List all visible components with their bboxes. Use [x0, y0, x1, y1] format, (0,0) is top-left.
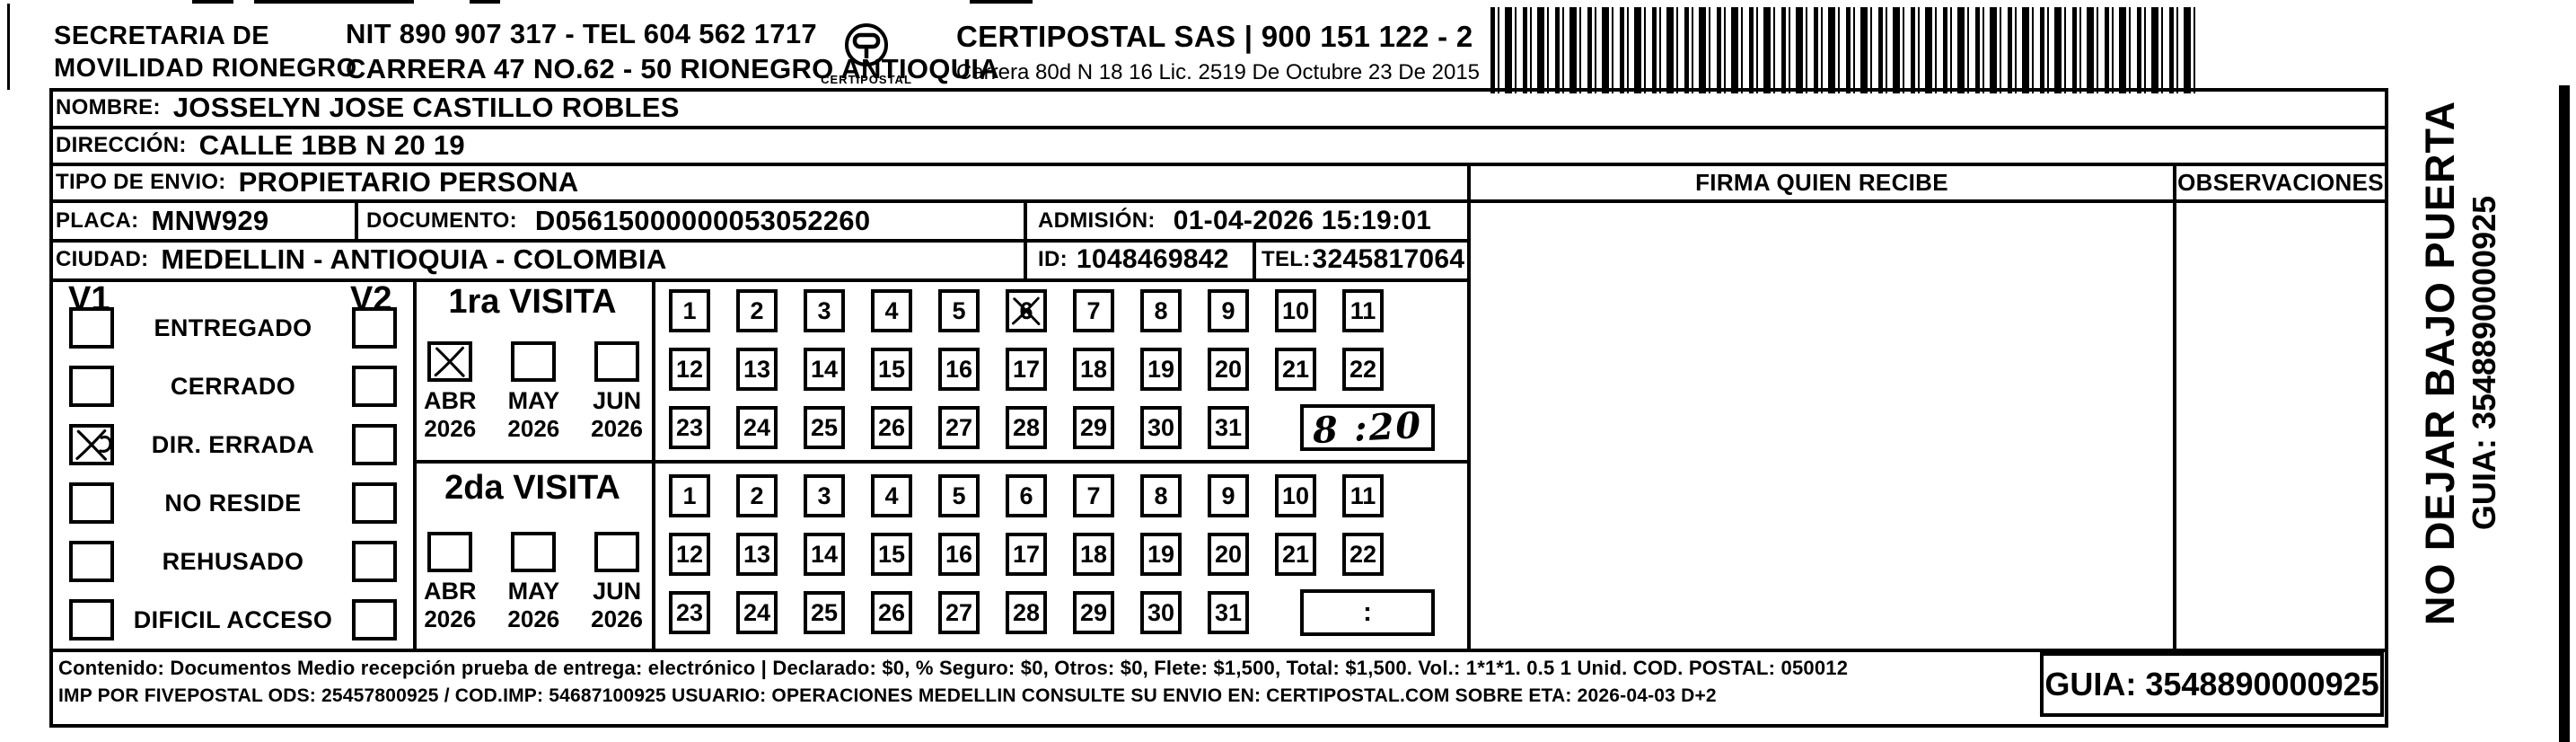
day-5-visit2[interactable]: 5: [938, 474, 980, 517]
day-1-visit2[interactable]: 1: [669, 474, 710, 517]
month-option: ABR2026: [424, 341, 477, 443]
status-option-row: DIR. ERRADA: [49, 422, 413, 467]
day-4-visit1[interactable]: 4: [871, 289, 912, 332]
day-24-visit2[interactable]: 24: [736, 591, 778, 634]
day-3-visit1[interactable]: 3: [804, 289, 845, 332]
day-6-visit2[interactable]: 6: [1006, 474, 1047, 517]
day-13-visit1[interactable]: 13: [736, 348, 778, 391]
day-number: 22: [1350, 356, 1376, 384]
admision-value: 01-04-2026 15:19:01: [1174, 206, 1432, 236]
checkbox-v1-no-reside[interactable]: [69, 482, 114, 524]
day-number: 31: [1215, 599, 1242, 627]
day-number: 30: [1147, 414, 1174, 442]
day-11-visit2[interactable]: 11: [1342, 474, 1384, 517]
checkbox-month-abr-visit1[interactable]: [427, 341, 472, 382]
day-17-visit1[interactable]: 17: [1006, 348, 1047, 391]
placa-value: MNW929: [151, 205, 268, 237]
month-option: JUN2026: [591, 532, 643, 633]
visit1-title: 1ra VISITA: [420, 283, 645, 322]
month-option: JUN2026: [591, 341, 643, 443]
day-number: 14: [811, 356, 838, 384]
day-number: 9: [1221, 297, 1235, 325]
checkbox-month-abr-visit2[interactable]: [427, 532, 472, 572]
ciudad-value: MEDELLIN - ANTIOQUIA - COLOMBIA: [161, 243, 666, 276]
month-label: MAY: [508, 387, 560, 415]
scan-artifact: [470, 0, 500, 4]
day-12-visit1[interactable]: 12: [669, 348, 710, 391]
month-year: 2026: [591, 415, 643, 443]
day-23-visit1[interactable]: 23: [669, 406, 710, 449]
day-17-visit2[interactable]: 17: [1006, 533, 1047, 576]
checkbox-v2-entregado[interactable]: [352, 307, 397, 349]
status-option-label: CERRADO: [114, 373, 352, 401]
day-number: 11: [1350, 297, 1376, 325]
day-7-visit2[interactable]: 7: [1073, 474, 1114, 517]
day-28-visit1[interactable]: 28: [1006, 406, 1047, 449]
footer-content-line: Contenido: Documentos Medio recepción pr…: [58, 657, 1848, 680]
scan-artifact: [7, 4, 10, 90]
checkbox-month-jun-visit2[interactable]: [594, 532, 639, 572]
day-10-visit1[interactable]: 10: [1275, 289, 1316, 332]
visit1-day-grid: 1234567891011121314151617181920212223242…: [669, 289, 1435, 464]
day-number: 19: [1147, 356, 1174, 384]
day-number: 5: [952, 297, 965, 325]
day-number: 20: [1215, 541, 1242, 569]
checkbox-v2-dir-errada[interactable]: [352, 424, 397, 465]
day-number: 17: [1013, 356, 1040, 384]
certipostal-logo: CERTIPOSTAL: [835, 22, 898, 92]
day-number: 19: [1147, 541, 1174, 569]
time-value: :: [1363, 597, 1372, 628]
day-27-visit2[interactable]: 27: [938, 591, 980, 634]
month-option: ABR2026: [424, 532, 477, 633]
day-grid-row: 1234567891011: [669, 474, 1435, 517]
day-22-visit2[interactable]: 22: [1342, 533, 1384, 576]
checkbox-month-may-visit1[interactable]: [511, 341, 556, 382]
day-number: 29: [1080, 414, 1107, 442]
day-29-visit1[interactable]: 29: [1073, 406, 1114, 449]
day-2-visit1[interactable]: 2: [736, 289, 778, 332]
month-option: MAY2026: [507, 341, 559, 443]
checkbox-v2-rehusado[interactable]: [352, 541, 397, 582]
tipo-envio-label: TIPO DE ENVIO:: [56, 170, 226, 195]
day-number: 15: [878, 541, 905, 569]
month-label: JUN: [593, 387, 641, 415]
ciudad-label: CIUDAD:: [56, 247, 148, 272]
tel-label: TEL:: [1262, 247, 1311, 272]
day-15-visit2[interactable]: 15: [871, 533, 912, 576]
scan-artifact: [254, 0, 414, 4]
handwritten-x-mark: [431, 345, 469, 378]
column-divider: [652, 278, 655, 649]
visit1-months: ABR2026MAY2026JUN2026: [418, 341, 648, 443]
day-number: 17: [1013, 541, 1040, 569]
month-label: MAY: [508, 578, 560, 605]
day-21-visit2[interactable]: 21: [1275, 533, 1316, 576]
certipostal-delivery-form: SECRETARIA DE MOVILIDAD RIONEGRO NIT 890…: [0, 0, 2576, 742]
day-number: 14: [811, 541, 838, 569]
day-number: 23: [676, 414, 703, 442]
nit-line: NIT 890 907 317 - TEL 604 562 1717: [346, 16, 999, 51]
day-grid-row: 232425262728293031:: [669, 591, 1435, 634]
day-14-visit2[interactable]: 14: [804, 533, 845, 576]
side-guia-text: GUIA: 3548890000925: [2466, 196, 2503, 530]
day-26-visit1[interactable]: 26: [871, 406, 912, 449]
company-address: Carrera 80d N 18 16 Lic. 2519 De Octubre…: [956, 60, 1480, 85]
day-grid-row: 2324252627282930318 :20: [669, 406, 1435, 449]
day-12-visit2[interactable]: 12: [669, 533, 710, 576]
visit2-title: 2da VISITA: [420, 469, 645, 508]
checkbox-v1-dir-errada[interactable]: [69, 424, 114, 465]
day-number: 24: [743, 599, 770, 627]
visit2-months: ABR2026MAY2026JUN2026: [418, 532, 648, 633]
day-24-visit1[interactable]: 24: [736, 406, 778, 449]
id-label: ID:: [1038, 247, 1068, 272]
day-number: 18: [1080, 541, 1107, 569]
day-number: 4: [884, 482, 898, 510]
day-number: 24: [743, 414, 770, 442]
day-3-visit2[interactable]: 3: [804, 474, 845, 517]
day-number: 1: [682, 482, 696, 510]
sender-org-line1: SECRETARIA DE: [54, 20, 357, 52]
nombre-label: NOMBRE:: [56, 95, 161, 120]
month-year: 2026: [507, 605, 559, 633]
day-number: 12: [676, 356, 703, 384]
status-option-row: ENTREGADO: [49, 305, 413, 350]
placa-cell: PLACA: MNW929: [56, 203, 268, 239]
day-number: 7: [1086, 482, 1100, 510]
month-label: JUN: [593, 578, 641, 605]
admision-cell: ADMISIÓN: 01-04-2026 15:19:01: [1038, 203, 1431, 239]
day-25-visit1[interactable]: 25: [804, 406, 845, 449]
documento-value: D05615000000053052260: [535, 205, 871, 237]
row-divider: [49, 278, 1471, 282]
day-number: 25: [811, 599, 838, 627]
day-number: 7: [1086, 297, 1100, 325]
day-number: 29: [1080, 599, 1107, 627]
column-divider: [413, 278, 417, 649]
day-18-visit1[interactable]: 18: [1073, 348, 1114, 391]
day-number: 26: [878, 414, 905, 442]
checkbox-month-jun-visit1[interactable]: [594, 341, 639, 382]
day-number: 27: [945, 414, 972, 442]
day-9-visit2[interactable]: 9: [1208, 474, 1249, 517]
day-number: 2: [750, 482, 763, 510]
day-number: 11: [1350, 482, 1376, 510]
day-31-visit1[interactable]: 31: [1208, 406, 1249, 449]
day-20-visit1[interactable]: 20: [1208, 348, 1249, 391]
day-number: 15: [878, 356, 905, 384]
day-4-visit2[interactable]: 4: [871, 474, 912, 517]
checkbox-v1-entregado[interactable]: [69, 307, 114, 349]
day-number: 10: [1282, 297, 1309, 325]
direccion-value: CALLE 1BB N 20 19: [199, 129, 465, 162]
day-25-visit2[interactable]: 25: [804, 591, 845, 634]
day-20-visit2[interactable]: 20: [1208, 533, 1249, 576]
day-8-visit1[interactable]: 8: [1140, 289, 1182, 332]
direccion-row: DIRECCIÓN: CALLE 1BB N 20 19: [56, 128, 465, 163]
day-number: 13: [743, 356, 770, 384]
day-22-visit1[interactable]: 22: [1342, 348, 1384, 391]
status-option-label: NO RESIDE: [114, 490, 352, 517]
company-block: CERTIPOSTAL SAS | 900 151 122 - 2 Carrer…: [956, 20, 1480, 85]
observaciones-area[interactable]: [2176, 203, 2385, 649]
sender-org: SECRETARIA DE MOVILIDAD RIONEGRO: [54, 20, 357, 84]
month-year: 2026: [507, 415, 559, 443]
day-19-visit1[interactable]: 19: [1140, 348, 1182, 391]
cell-divider: [1024, 199, 1027, 282]
direccion-label: DIRECCIÓN:: [56, 133, 187, 158]
day-number: 16: [945, 541, 972, 569]
day-number: 27: [945, 599, 972, 627]
day-number: 13: [743, 541, 770, 569]
day-number: 28: [1013, 599, 1040, 627]
day-number: 1: [682, 297, 696, 325]
day-number: 31: [1215, 414, 1242, 442]
day-29-visit2[interactable]: 29: [1073, 591, 1114, 634]
day-number: 5: [952, 482, 965, 510]
firma-header: FIRMA QUIEN RECIBE: [1471, 166, 2173, 199]
day-number: 3: [817, 297, 831, 325]
month-label: ABR: [424, 578, 477, 605]
handwritten-x-mark: [73, 428, 110, 462]
day-number: 22: [1350, 541, 1376, 569]
status-option-label: REHUSADO: [114, 548, 352, 576]
scan-artifact: [192, 0, 233, 4]
day-grid-row: 1213141516171819202122: [669, 533, 1435, 576]
status-option-row: DIFICIL ACCESO: [49, 597, 413, 642]
month-year: 2026: [424, 605, 476, 633]
status-option-label: ENTREGADO: [114, 314, 352, 342]
footer-imp-line: IMP POR FIVEPOSTAL ODS: 25457800925 / CO…: [58, 685, 1717, 707]
day-10-visit2[interactable]: 10: [1275, 474, 1316, 517]
day-16-visit1[interactable]: 16: [938, 348, 980, 391]
day-31-visit2[interactable]: 31: [1208, 591, 1249, 634]
day-number: 10: [1282, 482, 1309, 510]
status-option-row: NO RESIDE: [49, 481, 413, 526]
day-27-visit1[interactable]: 27: [938, 406, 980, 449]
checkbox-v2-cerrado[interactable]: [352, 366, 397, 407]
status-option-row: REHUSADO: [49, 539, 413, 584]
day-8-visit2[interactable]: 8: [1140, 474, 1182, 517]
day-21-visit1[interactable]: 21: [1275, 348, 1316, 391]
signature-area[interactable]: [1471, 203, 2173, 649]
scan-edge-bar: [2559, 85, 2570, 742]
id-cell: ID: 1048469842: [1038, 241, 1229, 278]
visit2-day-grid: 1234567891011121314151617181920212223242…: [669, 474, 1435, 649]
day-26-visit2[interactable]: 26: [871, 591, 912, 634]
day-6-visit1[interactable]: 6: [1006, 289, 1047, 332]
day-number: 23: [676, 599, 703, 627]
checkbox-v1-rehusado[interactable]: [69, 541, 114, 582]
day-5-visit1[interactable]: 5: [938, 289, 980, 332]
day-number: 25: [811, 414, 838, 442]
day-number: 12: [676, 541, 703, 569]
day-number: 2: [750, 297, 763, 325]
day-18-visit2[interactable]: 18: [1073, 533, 1114, 576]
documento-cell: DOCUMENTO: D05615000000053052260: [366, 203, 870, 239]
day-number: 6: [1019, 482, 1033, 510]
nombre-value: JOSSELYN JOSE CASTILLO ROBLES: [173, 92, 680, 124]
shipment-barcode: [1490, 7, 2200, 93]
day-9-visit1[interactable]: 9: [1208, 289, 1249, 332]
day-number: 28: [1013, 414, 1040, 442]
checkbox-v1-dificil-acceso[interactable]: [69, 599, 114, 640]
checkbox-v1-cerrado[interactable]: [69, 366, 114, 407]
month-option: MAY2026: [507, 532, 559, 633]
cell-divider: [355, 199, 358, 239]
day-15-visit1[interactable]: 15: [871, 348, 912, 391]
time-box-visit1[interactable]: 8 :20: [1300, 404, 1435, 451]
handwritten-x-mark: [1009, 293, 1043, 329]
scan-artifact: [970, 0, 1033, 4]
day-number: 9: [1221, 482, 1235, 510]
day-number: 21: [1282, 356, 1309, 384]
nombre-row: NOMBRE: JOSSELYN JOSE CASTILLO ROBLES: [56, 90, 680, 126]
certipostal-logo-icon: [841, 22, 892, 72]
cell-divider: [1253, 239, 1256, 278]
certipostal-logo-word: CERTIPOSTAL: [821, 73, 912, 86]
day-28-visit2[interactable]: 28: [1006, 591, 1047, 634]
day-number: 8: [1154, 297, 1167, 325]
day-number: 21: [1282, 541, 1309, 569]
no-dejar-text: NO DEJAR BAJO PUERTA: [2417, 101, 2464, 625]
company-name: CERTIPOSTAL SAS | 900 151 122 - 2: [956, 20, 1480, 54]
observaciones-header: OBSERVACIONES: [2176, 166, 2385, 199]
checkbox-v2-no-reside[interactable]: [352, 482, 397, 524]
day-number: 4: [884, 297, 898, 325]
tipo-envio-value: PROPIETARIO PERSONA: [239, 166, 579, 199]
month-label: ABR: [424, 387, 477, 415]
day-19-visit2[interactable]: 19: [1140, 533, 1182, 576]
day-13-visit2[interactable]: 13: [736, 533, 778, 576]
time-value: 8 :20: [1312, 403, 1423, 451]
time-box-visit2[interactable]: :: [1300, 589, 1435, 636]
placa-label: PLACA:: [56, 208, 138, 234]
status-options: ENTREGADOCERRADODIR. ERRADANO RESIDEREHU…: [49, 305, 413, 656]
side-note: NO DEJAR BAJO PUERTA GUIA: 3548890000925: [2410, 84, 2510, 641]
day-30-visit2[interactable]: 30: [1140, 591, 1182, 634]
day-30-visit1[interactable]: 30: [1140, 406, 1182, 449]
status-option-row: CERRADO: [49, 364, 413, 409]
day-number: 8: [1154, 482, 1167, 510]
tel-value: 3245817064: [1313, 244, 1465, 275]
day-number: 18: [1080, 356, 1107, 384]
ciudad-cell: CIUDAD: MEDELLIN - ANTIOQUIA - COLOMBIA: [56, 241, 667, 278]
day-2-visit2[interactable]: 2: [736, 474, 778, 517]
documento-label: DOCUMENTO:: [366, 208, 517, 234]
day-7-visit1[interactable]: 7: [1073, 289, 1114, 332]
month-year: 2026: [424, 415, 476, 443]
checkbox-v2-dificil-acceso[interactable]: [352, 599, 397, 640]
day-number: 26: [878, 599, 905, 627]
guia-number-box: GUIA: 3548890000925: [2040, 652, 2384, 717]
day-number: 30: [1147, 599, 1174, 627]
day-grid-row: 1234567891011: [669, 289, 1435, 332]
status-option-label: DIR. ERRADA: [114, 431, 352, 459]
day-number: 20: [1215, 356, 1242, 384]
checkbox-month-may-visit2[interactable]: [511, 532, 556, 572]
day-number: 3: [817, 482, 831, 510]
sender-org-line2: MOVILIDAD RIONEGRO: [54, 52, 357, 84]
day-1-visit1[interactable]: 1: [669, 289, 710, 332]
status-option-label: DIFICIL ACCESO: [114, 606, 352, 634]
day-23-visit2[interactable]: 23: [669, 591, 710, 634]
day-14-visit1[interactable]: 14: [804, 348, 845, 391]
day-number: 16: [945, 356, 972, 384]
day-grid-row: 1213141516171819202122: [669, 348, 1435, 391]
tipo-envio-row: TIPO DE ENVIO: PROPIETARIO PERSONA: [56, 165, 578, 199]
id-value: 1048469842: [1077, 244, 1229, 275]
tel-cell: TEL: 3245817064: [1262, 241, 1464, 278]
day-16-visit2[interactable]: 16: [938, 533, 980, 576]
day-11-visit1[interactable]: 11: [1342, 289, 1384, 332]
admision-label: ADMISIÓN:: [1038, 208, 1156, 234]
month-year: 2026: [591, 605, 643, 633]
